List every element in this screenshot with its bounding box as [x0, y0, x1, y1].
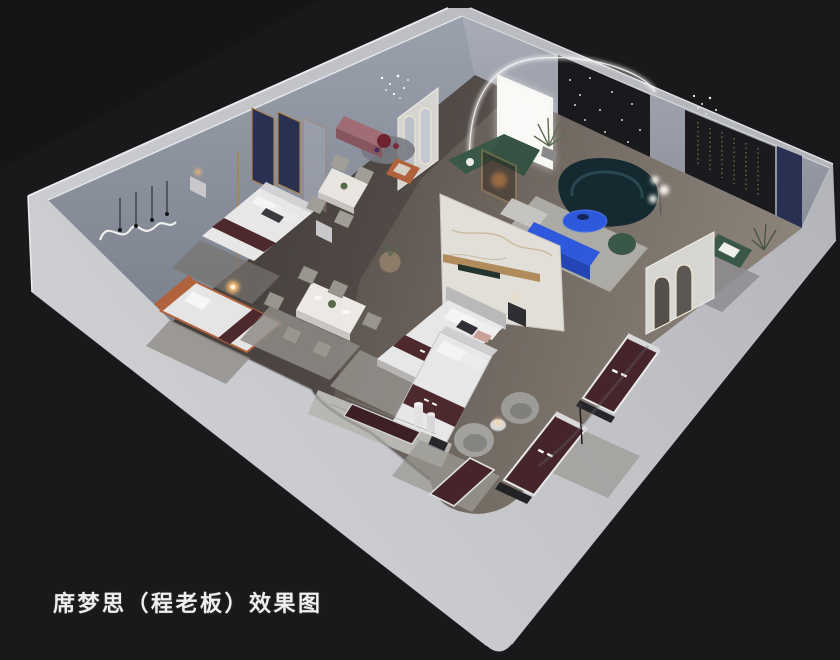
- tub-chair-seat: [510, 403, 532, 419]
- table-plant: [328, 300, 336, 308]
- sofa-pillow: [466, 158, 474, 166]
- plate: [314, 296, 322, 300]
- vase: [375, 148, 380, 153]
- interior-render: [0, 0, 840, 660]
- plate: [342, 310, 350, 314]
- navy-headboard-panel: [278, 112, 300, 194]
- blue-oval-coffee-table: [563, 210, 607, 232]
- table-plant: [341, 183, 348, 190]
- rendering-canvas: 席梦思（程老板）效果图: [0, 0, 840, 660]
- nightstand-lamp: [514, 295, 518, 299]
- red-round-table: [377, 134, 391, 148]
- green-round-chair: [608, 233, 636, 255]
- navy-headboard-panel: [252, 108, 274, 190]
- lamp-bulb: [231, 285, 236, 290]
- stand-warm-glow: [491, 172, 507, 188]
- table-lamp-glow: [494, 418, 502, 426]
- capsule-mirror: [420, 108, 431, 164]
- vase: [393, 143, 399, 149]
- arch-mirror: [654, 277, 670, 330]
- navy-accent-wall: [777, 146, 802, 228]
- caption-title: 席梦思（程老板）效果图: [53, 586, 323, 618]
- bedside-lamp: [195, 169, 201, 175]
- arch-mirror: [676, 265, 692, 318]
- tub-chair-seat: [463, 434, 487, 452]
- table-decor-bowl: [577, 214, 589, 220]
